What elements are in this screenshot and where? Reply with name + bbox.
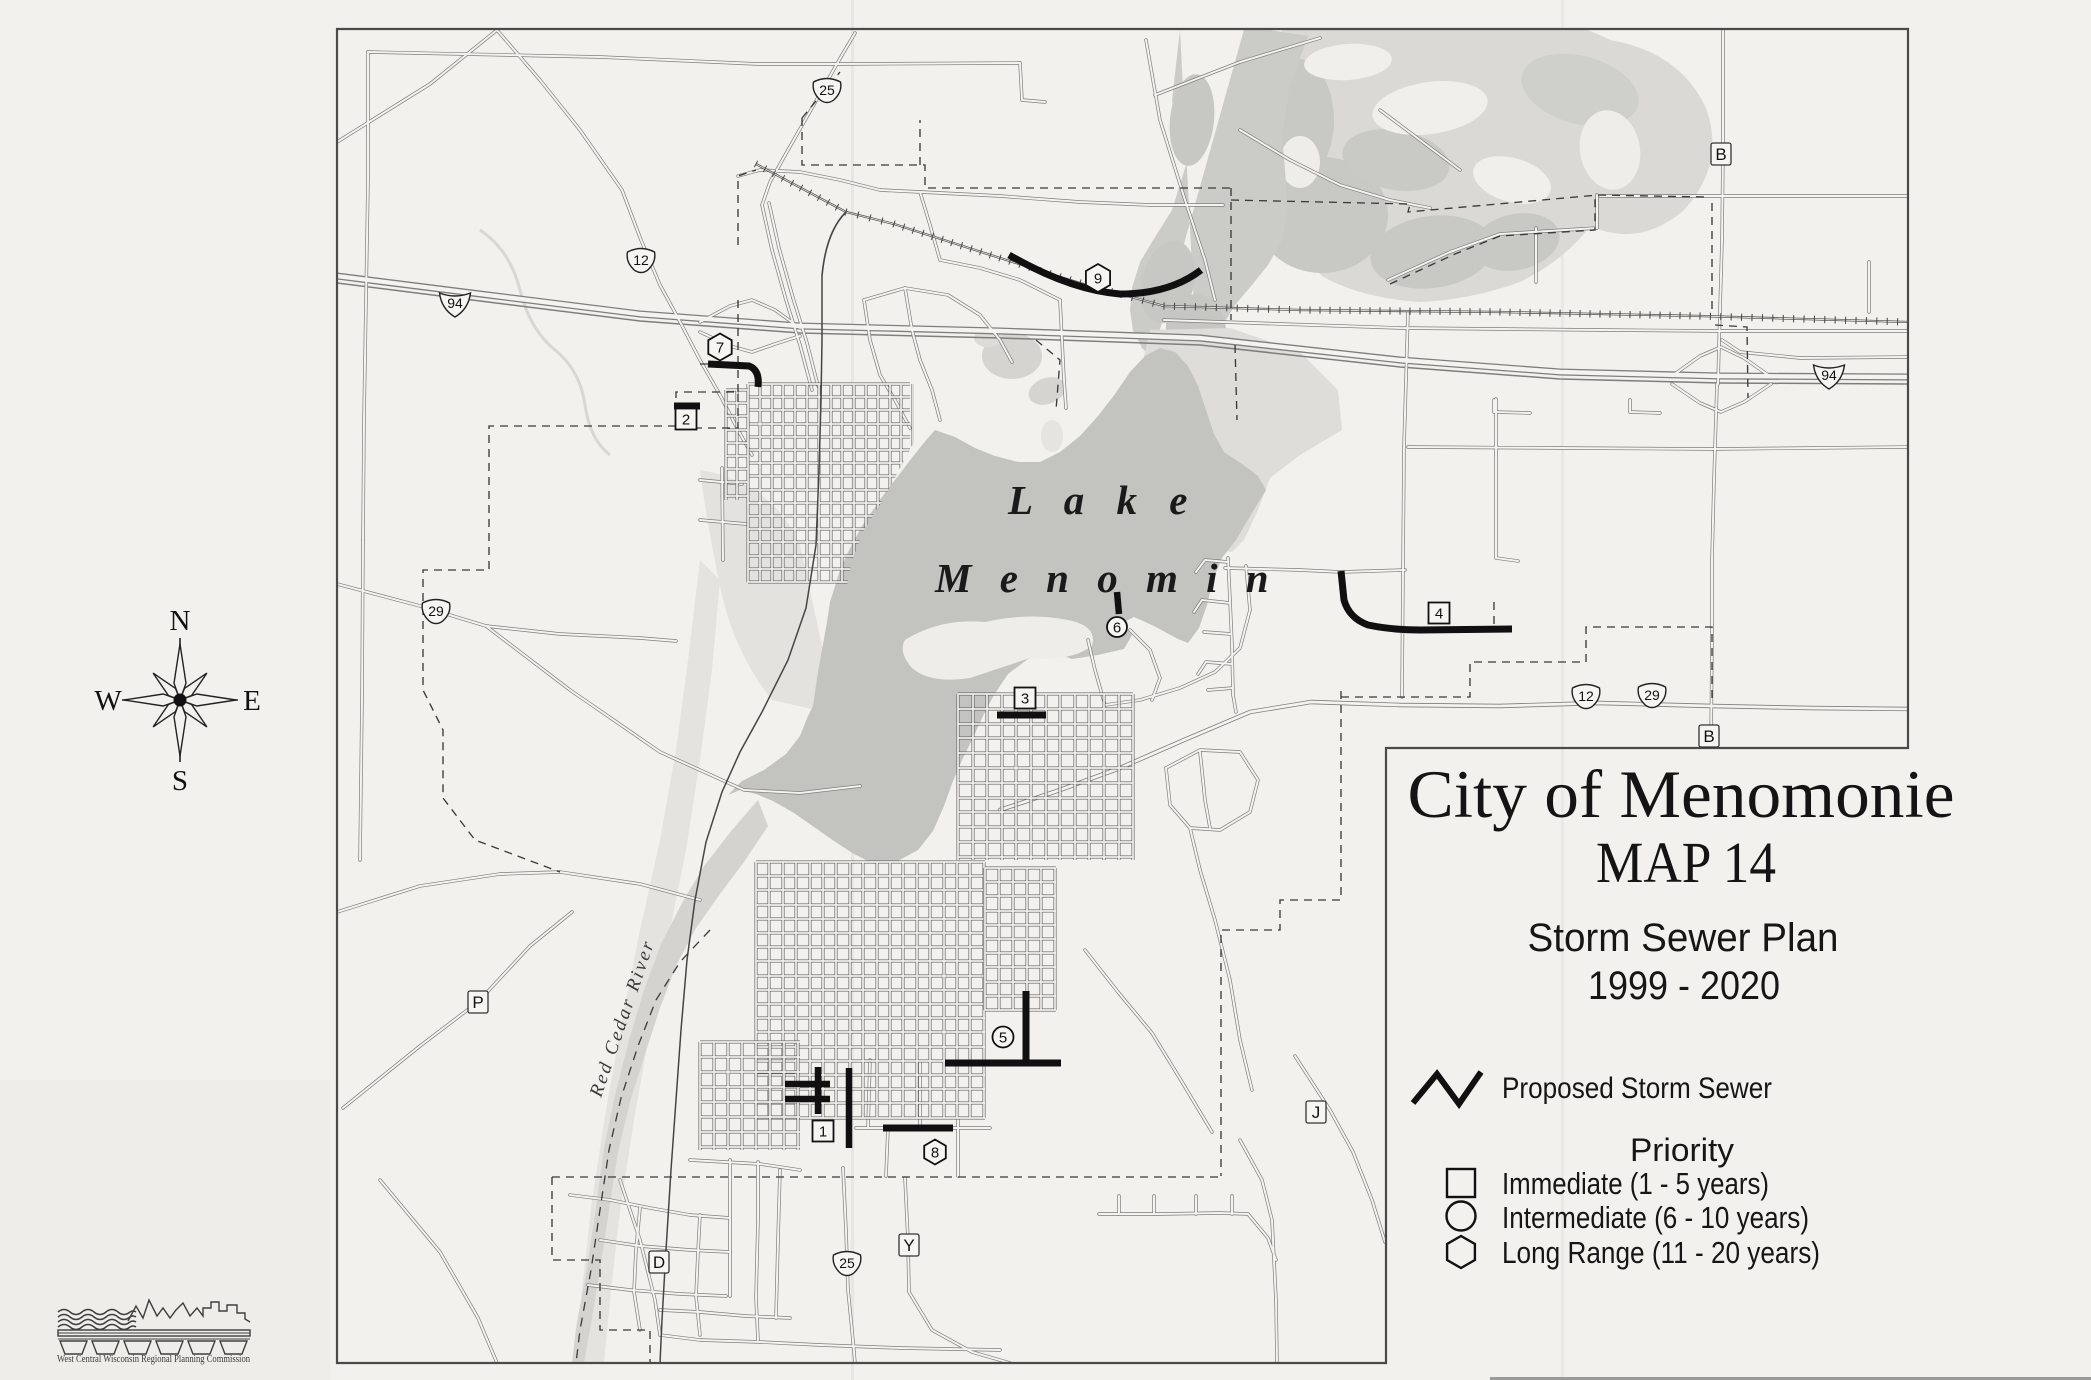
svg-text:S: S xyxy=(172,765,188,797)
svg-text:Priority: Priority xyxy=(1630,1132,1734,1168)
svg-text:City of Menomonie: City of Menomonie xyxy=(1408,756,1955,832)
svg-text:1999 - 2020: 1999 - 2020 xyxy=(1588,964,1780,1008)
svg-text:Immediate (1 - 5 years): Immediate (1 - 5 years) xyxy=(1502,1166,1769,1201)
svg-text:94: 94 xyxy=(1821,367,1837,383)
svg-text:West Central Wisconsin Regiona: West Central Wisconsin Regional Planning… xyxy=(57,1354,250,1365)
svg-text:E: E xyxy=(243,685,261,717)
svg-text:MAP 14: MAP 14 xyxy=(1596,830,1776,895)
svg-text:B: B xyxy=(1715,145,1726,164)
svg-text:8: 8 xyxy=(931,1145,939,1162)
svg-text:Storm Sewer Plan: Storm Sewer Plan xyxy=(1528,916,1839,960)
svg-text:12: 12 xyxy=(1578,688,1594,704)
svg-text:L a k e: L a k e xyxy=(1007,477,1198,523)
svg-text:J: J xyxy=(1312,1103,1321,1122)
svg-text:P: P xyxy=(472,993,483,1012)
svg-text:3: 3 xyxy=(1021,691,1029,708)
svg-text:6: 6 xyxy=(1113,620,1121,637)
svg-text:B: B xyxy=(1703,727,1714,746)
svg-text:N: N xyxy=(170,605,191,637)
svg-text:9: 9 xyxy=(1094,271,1102,288)
svg-text:25: 25 xyxy=(819,82,835,98)
svg-text:7: 7 xyxy=(716,340,724,357)
svg-text:2: 2 xyxy=(682,412,690,429)
svg-text:1: 1 xyxy=(819,1124,827,1141)
svg-text:Intermediate (6 - 10 years): Intermediate (6 - 10 years) xyxy=(1502,1200,1809,1235)
svg-text:4: 4 xyxy=(1435,606,1443,623)
svg-text:94: 94 xyxy=(447,295,463,311)
svg-text:25: 25 xyxy=(839,1255,855,1271)
svg-text:W: W xyxy=(94,685,122,717)
svg-text:12: 12 xyxy=(633,252,649,268)
svg-text:Proposed Storm Sewer: Proposed Storm Sewer xyxy=(1502,1072,1772,1105)
svg-text:29: 29 xyxy=(428,603,444,619)
svg-text:D: D xyxy=(653,1253,665,1272)
svg-text:5: 5 xyxy=(999,1030,1007,1047)
svg-text:29: 29 xyxy=(1644,687,1660,703)
svg-text:Long Range (11 - 20 years): Long Range (11 - 20 years) xyxy=(1502,1235,1820,1270)
svg-text:M e n o m i n: M e n o m i n xyxy=(934,555,1278,601)
svg-text:Y: Y xyxy=(903,1236,914,1255)
